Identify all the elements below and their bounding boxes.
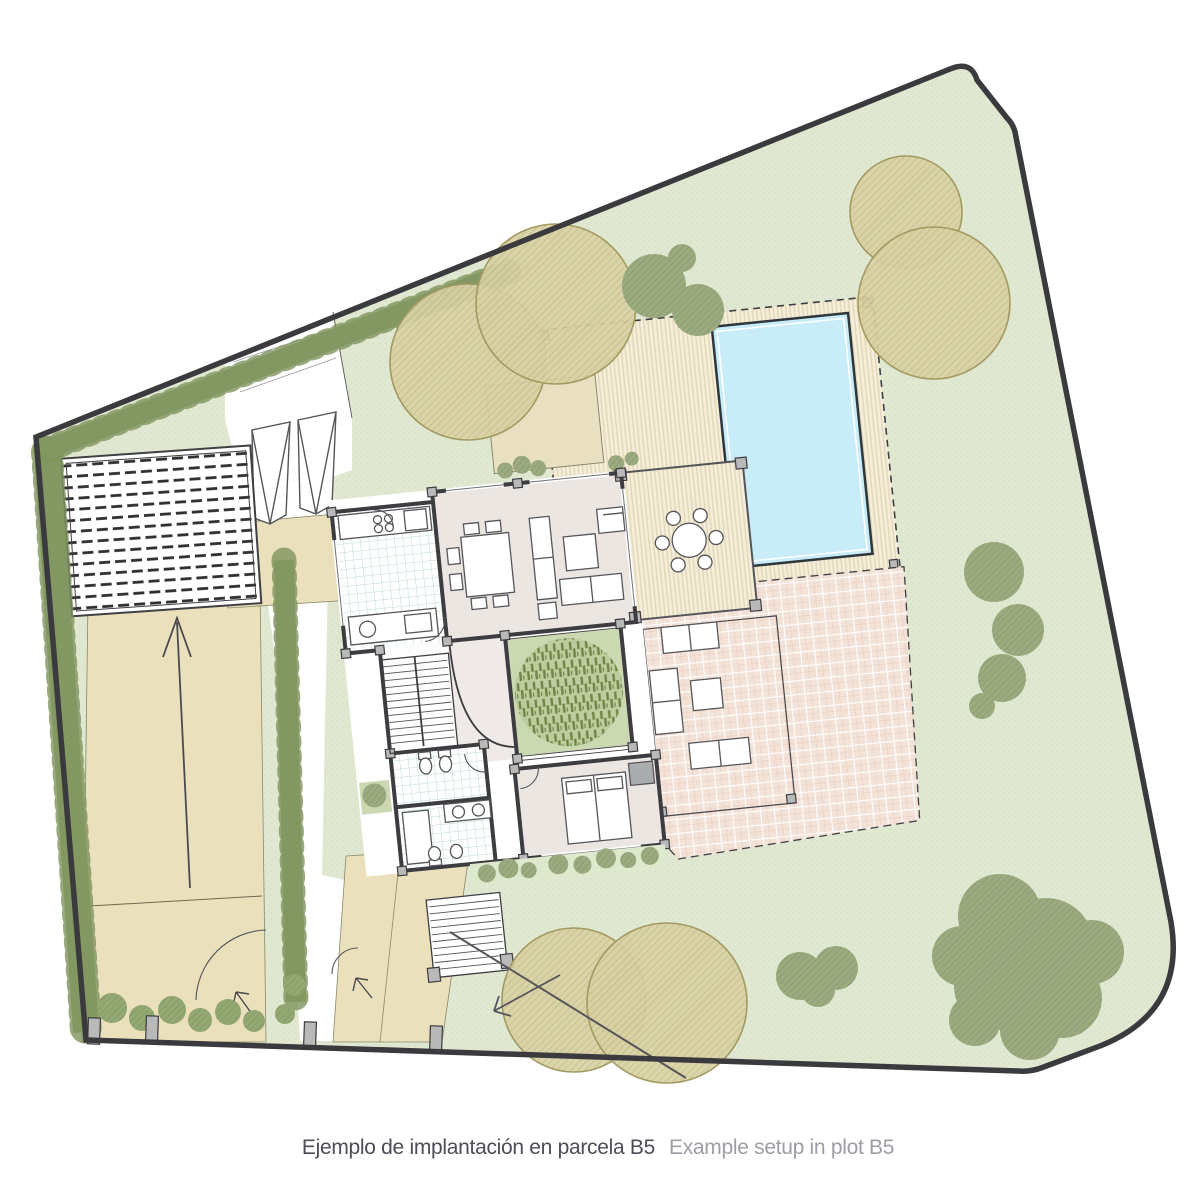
site-plan-drawing: [0, 0, 1196, 1200]
inner-courtyard: [505, 624, 633, 761]
caption-english: Example setup in plot B5: [669, 1136, 894, 1159]
site-plan-page: Ejemplo de implantación en parcela B5Exa…: [0, 0, 1196, 1200]
caption-spanish: Ejemplo de implantación en parcela B5: [302, 1136, 655, 1159]
caption: Ejemplo de implantación en parcela B5Exa…: [0, 1136, 1196, 1160]
carport-pergola: [61, 445, 262, 616]
garden-stairs: [420, 892, 514, 983]
covered-pergola-dining: [615, 457, 762, 624]
